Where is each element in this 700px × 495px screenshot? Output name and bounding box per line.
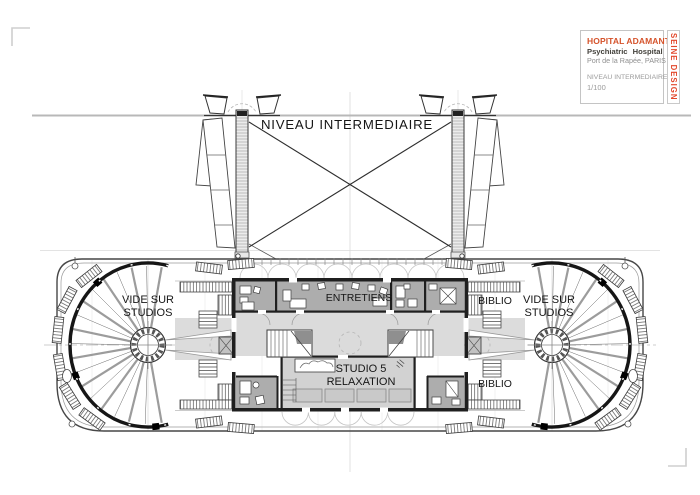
- plan-heading: NIVEAU INTERMEDIAIRE: [261, 117, 433, 132]
- label-entretiens: ENTRETIENS: [326, 292, 393, 304]
- label-void-left-line1: VIDE SUR: [122, 294, 174, 306]
- stair-right: [388, 330, 433, 357]
- drawing-scale: 1/100: [587, 83, 660, 92]
- label-biblio-bottom: BIBLIO: [478, 378, 512, 390]
- drawing-title: NIVEAU INTERMEDIAIRE: [587, 74, 660, 82]
- project-subtitle: Psychiatric Hospital: [587, 47, 660, 56]
- label-void-right-line1: VIDE SUR: [523, 294, 575, 306]
- label-relaxation: RELAXATION: [327, 376, 396, 388]
- label-void-right-line2: STUDIOS: [525, 307, 574, 319]
- label-biblio-top: BIBLIO: [478, 295, 512, 307]
- project-address: Port de la Rapée, PARIS: [587, 56, 660, 65]
- firm-strip: SEINE DESIGN: [667, 30, 680, 104]
- title-block: HOPITAL ADAMANT Psychiatric Hospital Por…: [580, 30, 664, 104]
- label-studio5: STUDIO 5: [336, 363, 387, 375]
- label-void-left-line2: STUDIOS: [124, 307, 173, 319]
- firm-name: SEINE DESIGN: [669, 33, 678, 100]
- stair-left: [267, 330, 312, 357]
- drawing-sheet: NIVEAU INTERMEDIAIRE: [0, 0, 700, 495]
- project-name: HOPITAL ADAMANT: [587, 36, 660, 47]
